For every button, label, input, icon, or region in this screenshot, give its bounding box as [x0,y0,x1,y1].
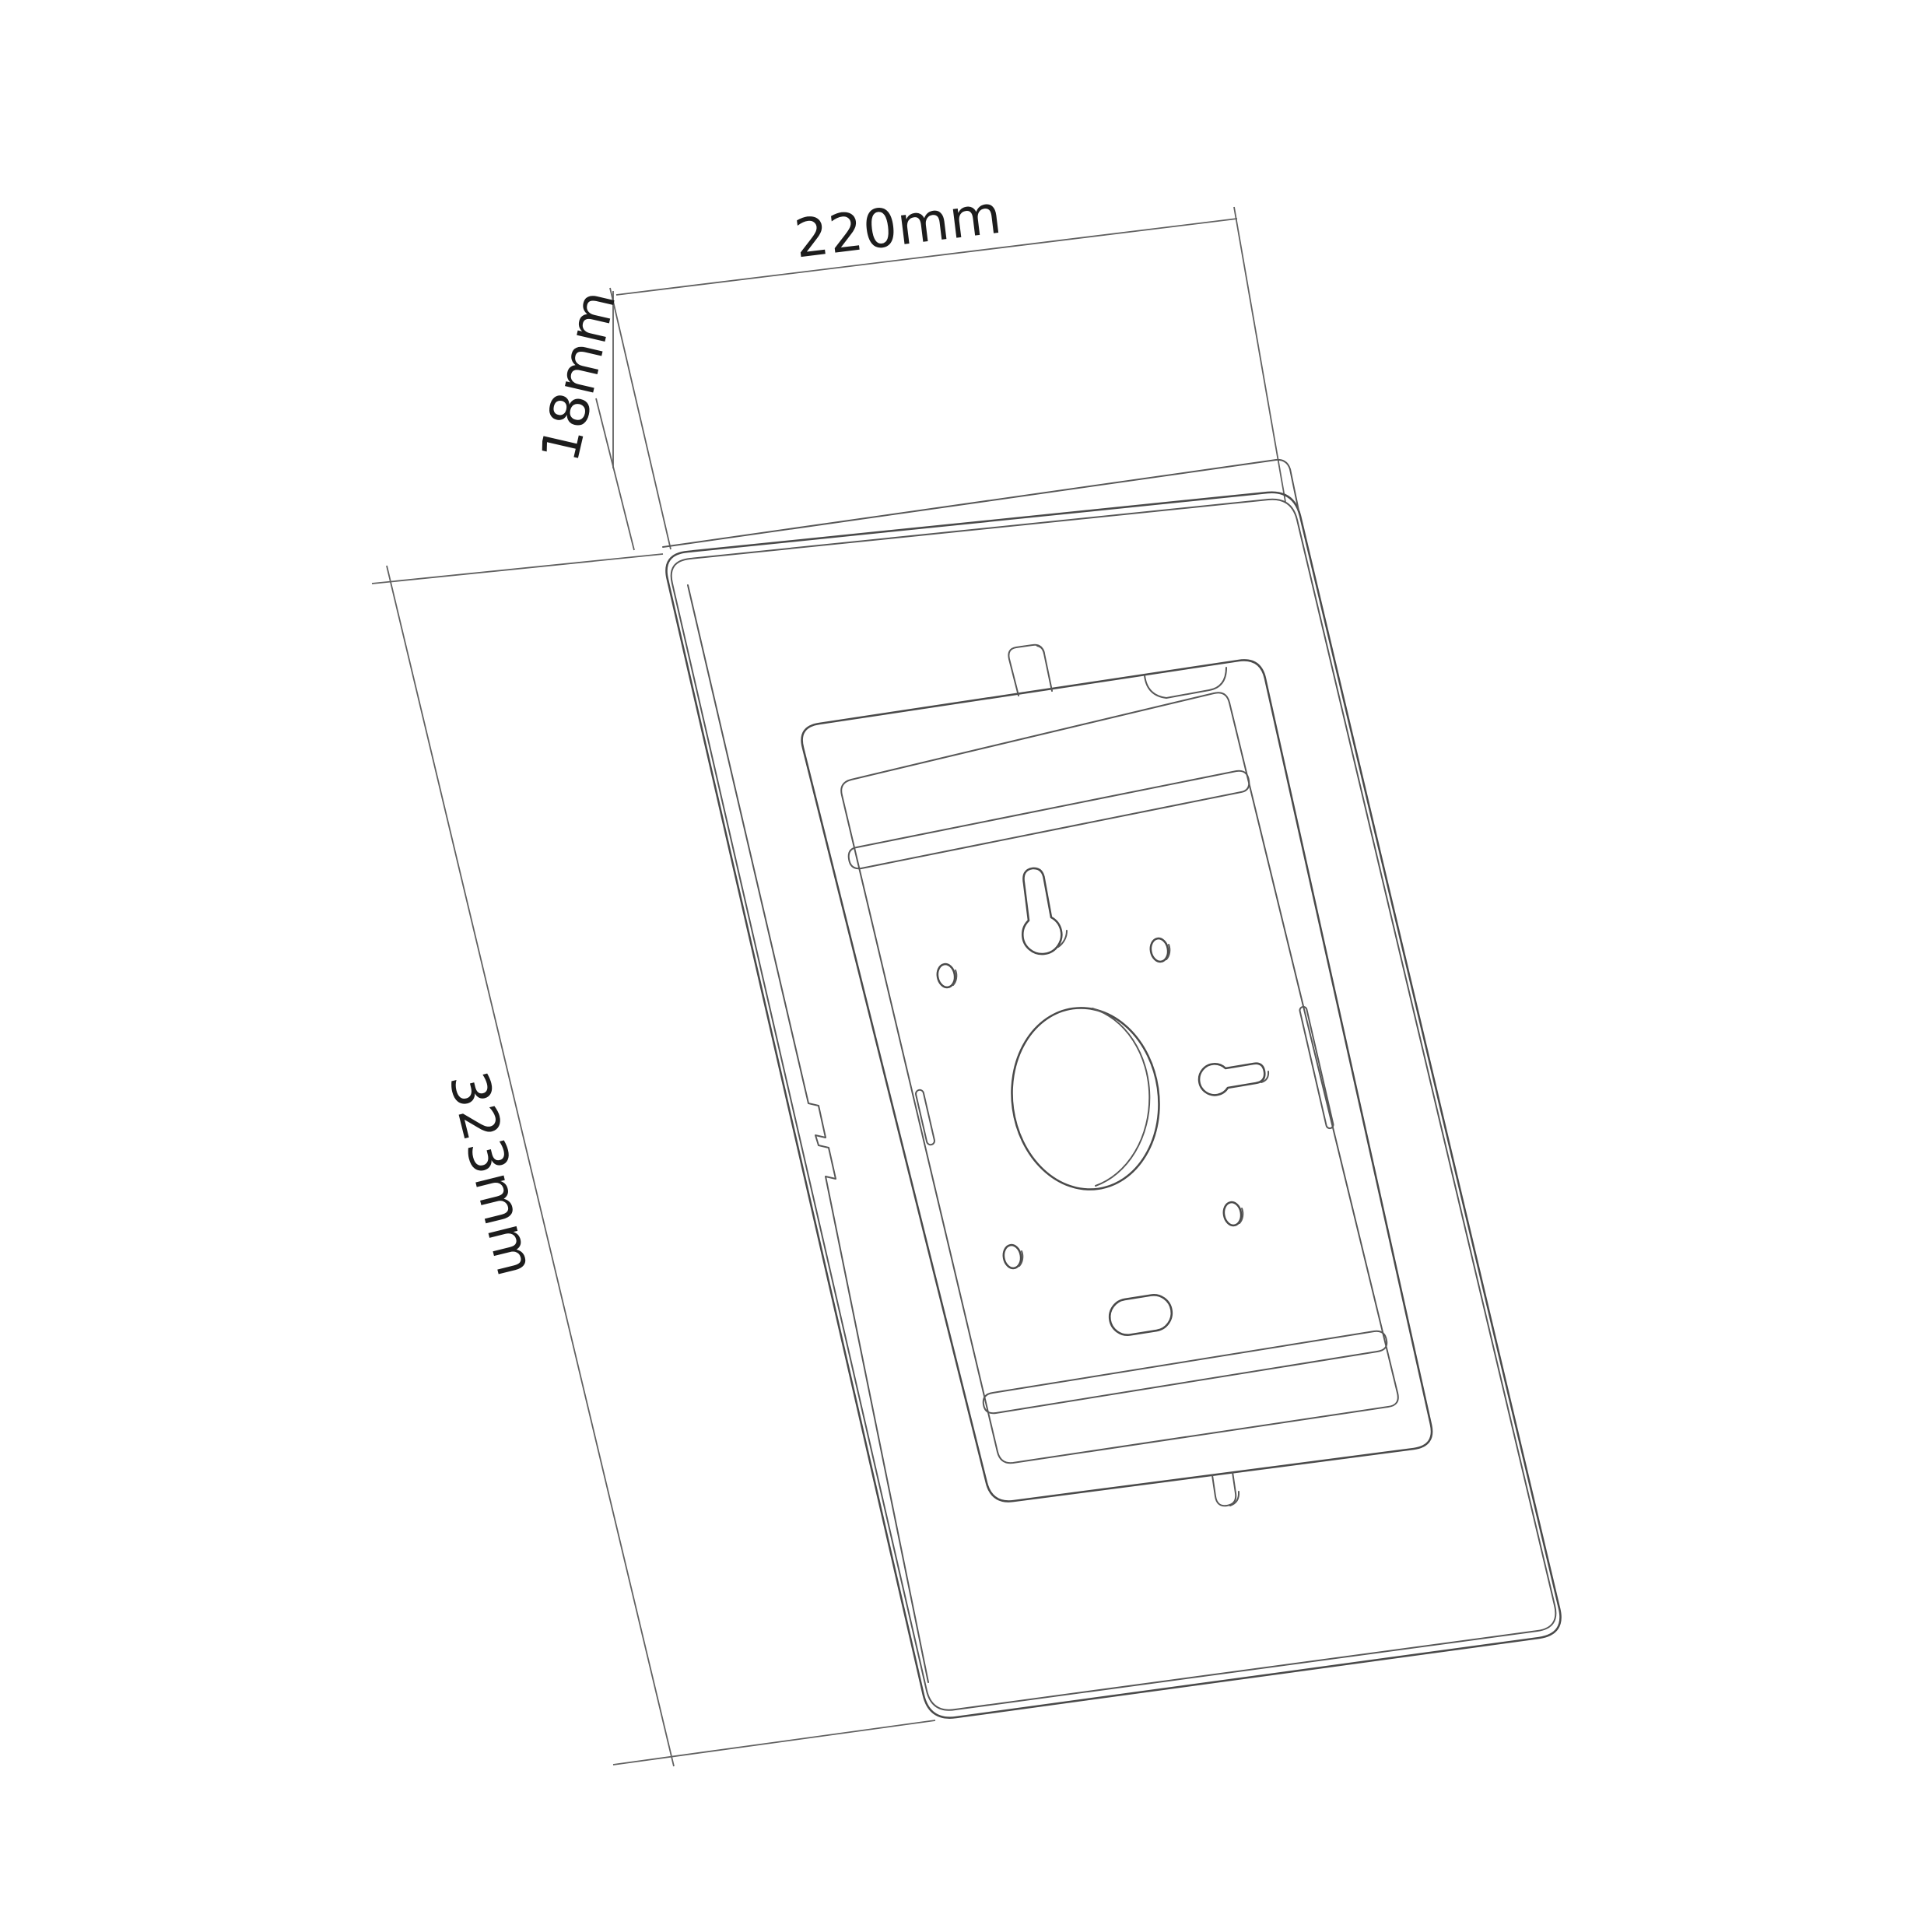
height-dimension-line [387,566,674,1766]
height-extension-line-bottom [613,1720,935,1765]
inner-recess [802,645,1432,1506]
enclosure-outer-frame [666,493,1560,1718]
keyhole-slot-vertical [1022,868,1061,954]
dimension-depth: 18mm [530,285,634,550]
bottom-cable-slot [1107,1292,1174,1338]
keyhole-slot-horizontal [1199,1064,1264,1096]
clamp-bar-bottom [984,1331,1387,1414]
drawing-canvas: 220mm 18mm 323mm [0,0,1932,1932]
cable-hole-depth [1092,1008,1149,1186]
depth-extension-line-back [596,398,634,550]
enclosure-edge-contour [671,500,1556,1710]
inner-recess-opening [802,660,1432,1501]
cable-hole-large [1001,998,1171,1199]
enclosure-edge-fold [688,585,928,1682]
mounting-holes [936,868,1269,1338]
height-extension-line-top [372,554,663,584]
dimension-height: 323mm [372,554,935,1766]
top-hook-tab [1008,645,1052,696]
enclosure-body [663,460,1561,1718]
technical-drawing-tablet-enclosure: 220mm 18mm 323mm [0,0,1932,1932]
dimension-label-height: 323mm [437,1066,546,1282]
enclosure-top-face-edge [663,460,1299,547]
width-extension-line-right [1234,207,1285,502]
dimension-width: 220mm [610,184,1285,549]
bottom-lock-tab [1212,1472,1236,1506]
clamp-bar-top [849,771,1250,869]
dimension-label-width: 220mm [791,184,1005,271]
